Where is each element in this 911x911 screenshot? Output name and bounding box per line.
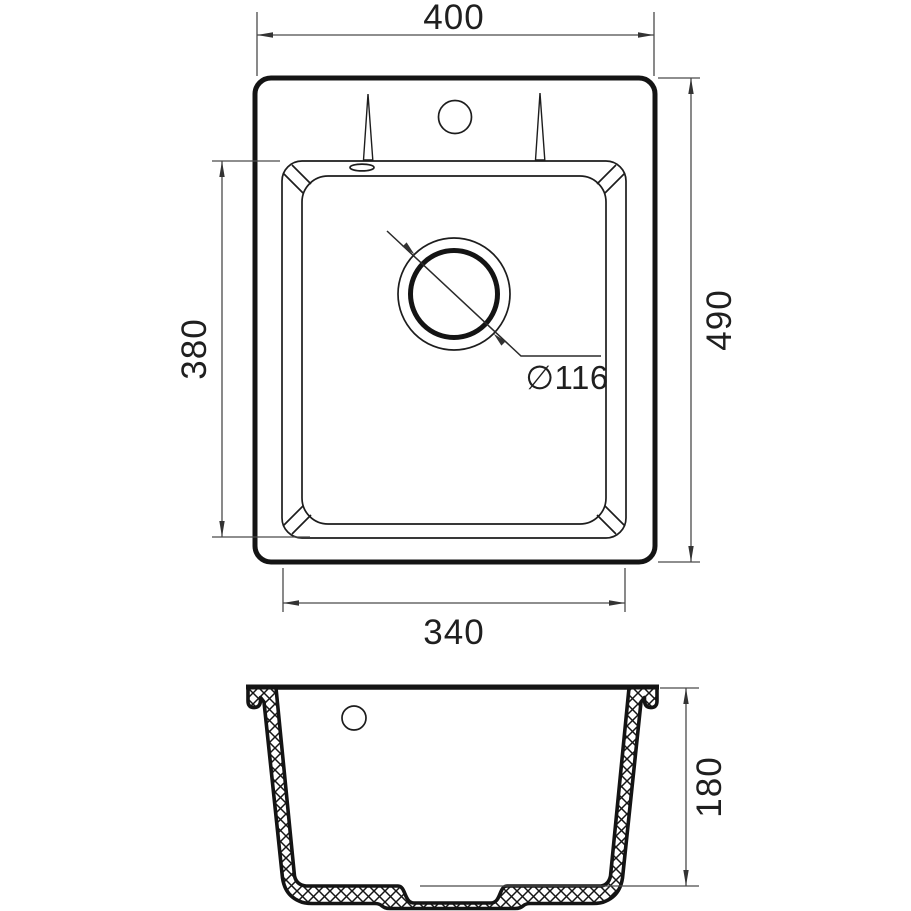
drain-arrow-top — [402, 242, 414, 254]
dim-bowl-depth-label: 380 — [175, 318, 214, 379]
dim-overall-width-label: 400 — [423, 0, 484, 37]
dim-bowl-width-extension-lines — [283, 568, 625, 612]
dim-bowl-depth: 380 — [175, 161, 310, 537]
drawing-svg: ∅116 400 490 380 340 — [0, 0, 911, 911]
dim-bowl-width-label: 340 — [423, 613, 484, 652]
section-overflow-hole — [342, 706, 366, 730]
sink-technical-drawing: ∅116 400 490 380 340 — [0, 0, 911, 911]
dim-overall-width: 400 — [257, 0, 654, 76]
dim-overall-depth-extension-lines — [658, 78, 700, 562]
section-view: 180 — [246, 687, 729, 909]
dim-overall-depth: 490 — [658, 78, 739, 562]
faucet-position-marker-right — [536, 93, 545, 160]
dim-bowl-width: 340 — [283, 568, 625, 652]
sink-outer-outline — [255, 78, 655, 562]
dim-bowl-height-label: 180 — [690, 756, 729, 817]
dim-drain-diameter-label: ∅116 — [525, 359, 608, 396]
overflow-slot — [350, 164, 374, 171]
top-view: ∅116 400 490 380 340 — [175, 0, 739, 652]
dim-bowl-height-extension-lines — [420, 688, 699, 886]
faucet-position-marker-left — [364, 94, 373, 160]
dim-bowl-depth-extension-lines — [212, 161, 310, 537]
section-wall-profile — [248, 687, 657, 909]
dim-bowl-height: 180 — [420, 688, 729, 886]
faucet-hole — [439, 101, 472, 134]
dim-overall-depth-label: 490 — [700, 289, 739, 350]
